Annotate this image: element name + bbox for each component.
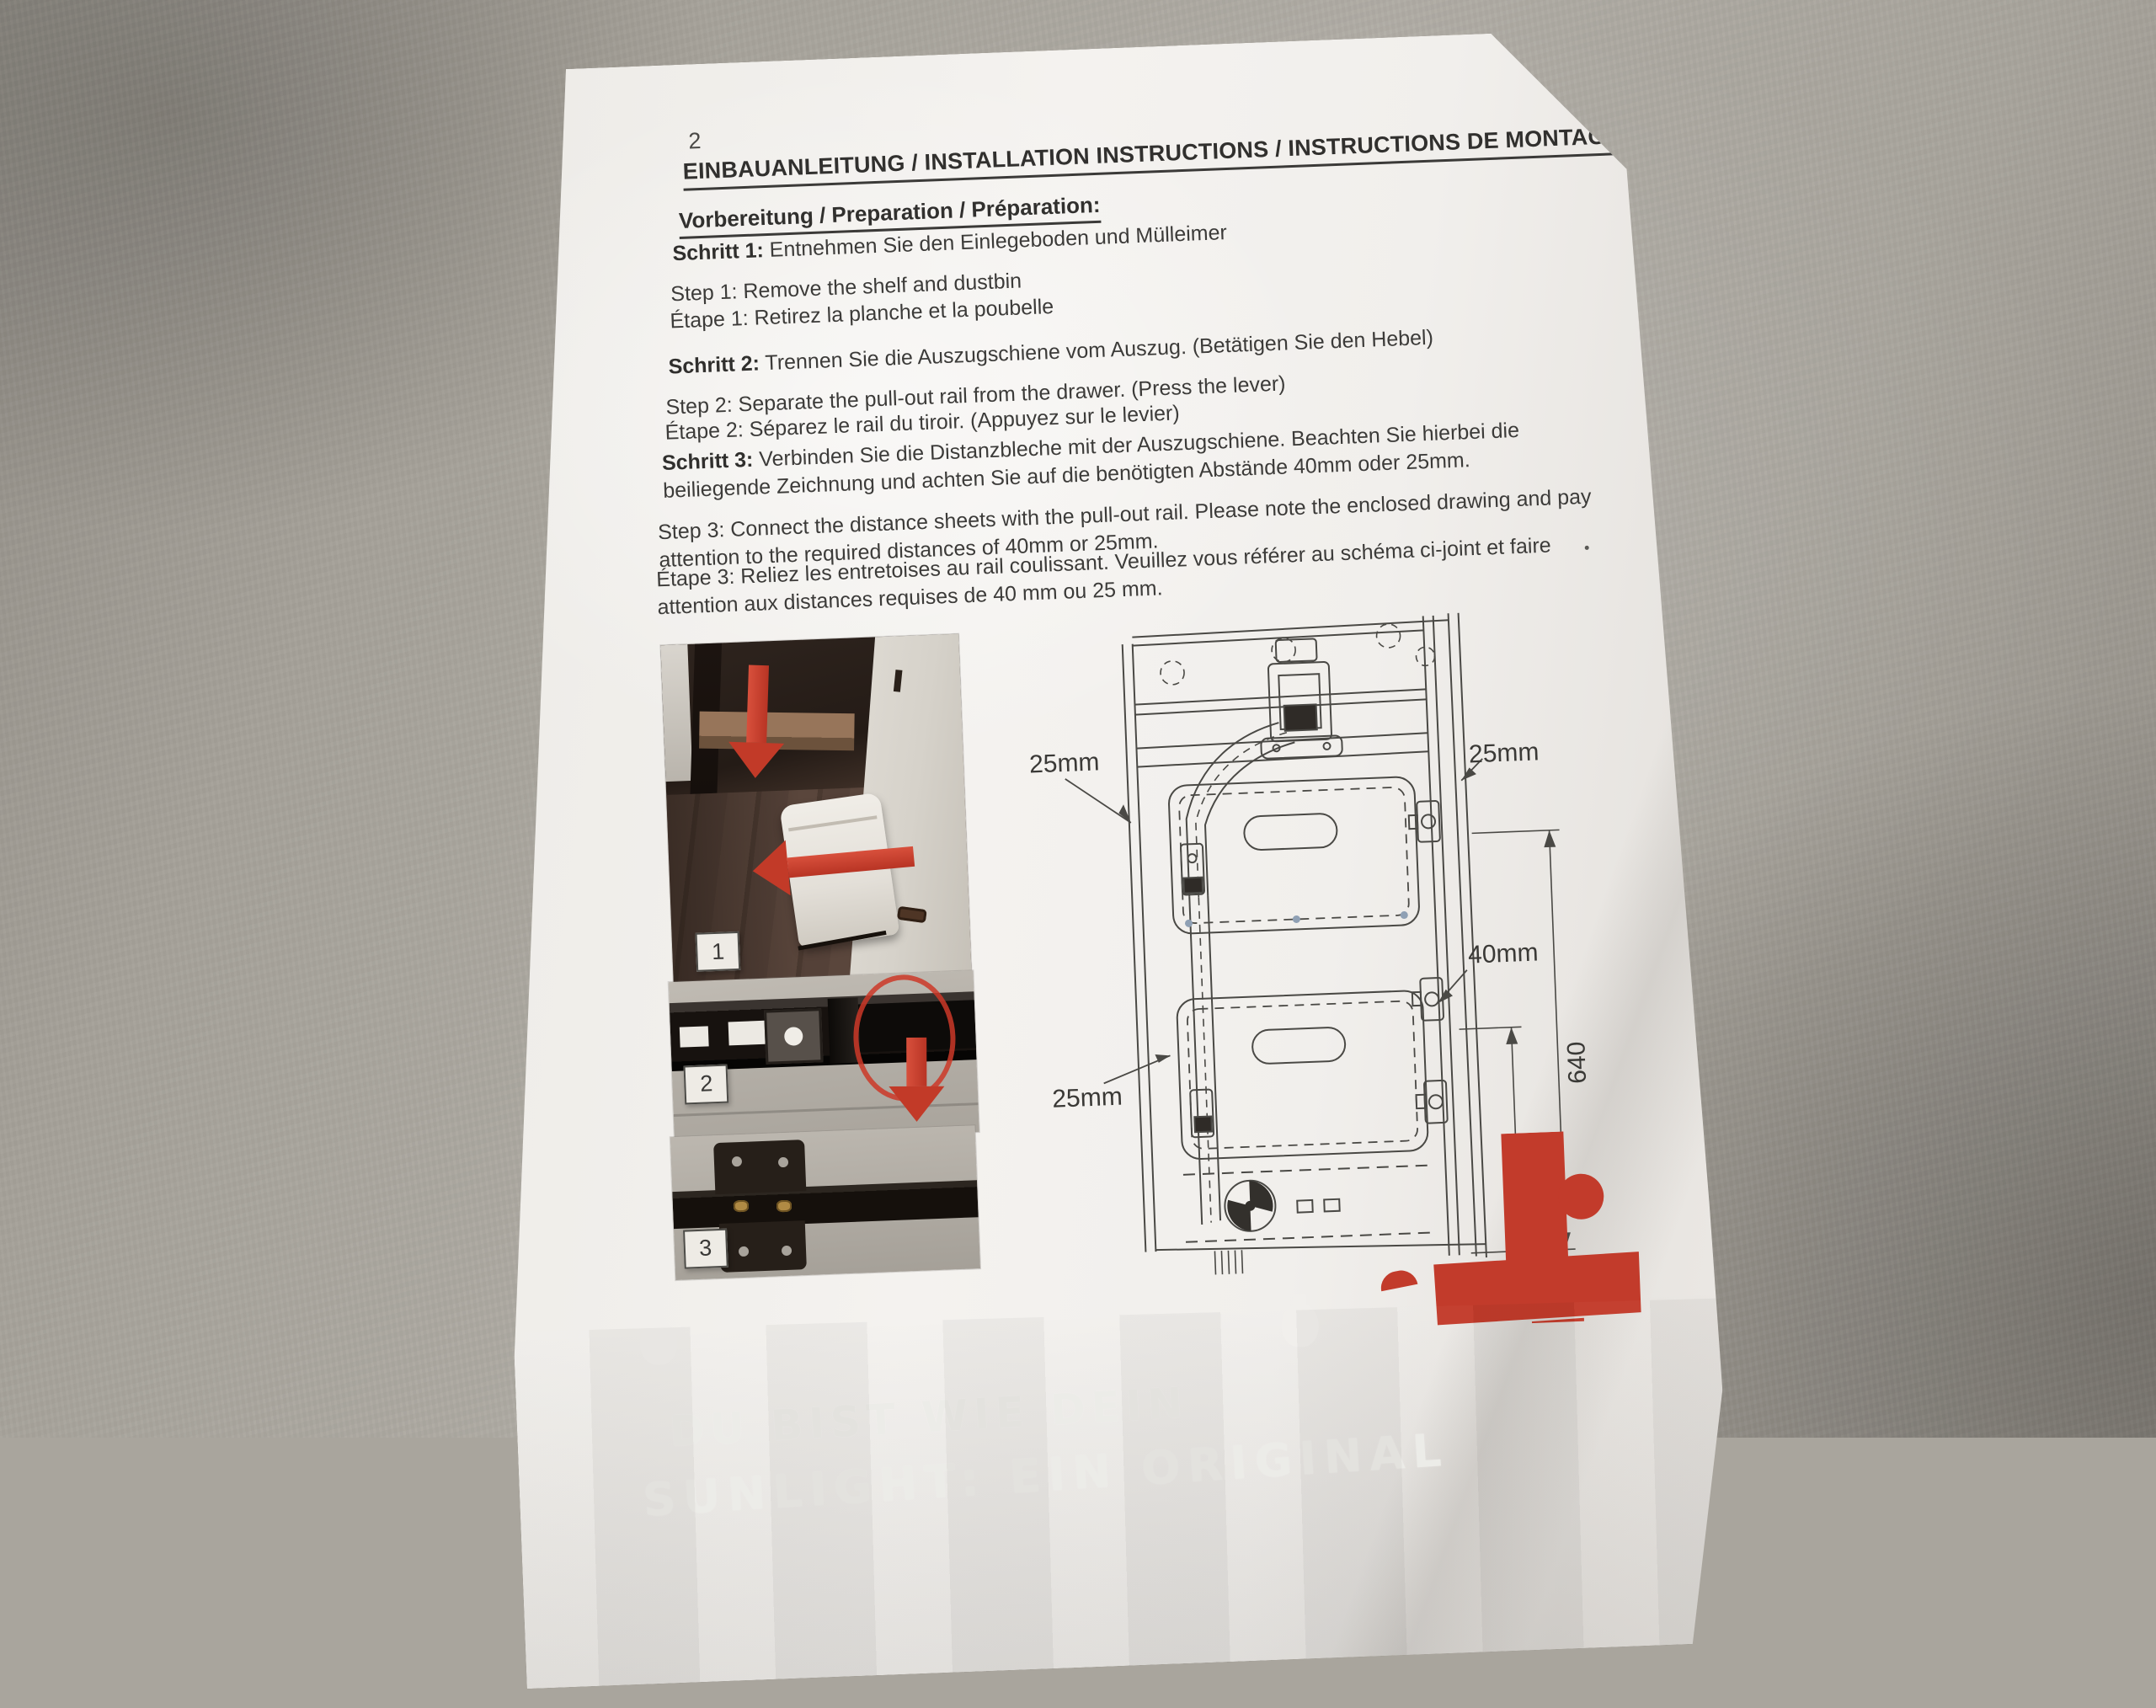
step1-german-label: Schritt 1: <box>672 238 764 265</box>
photo-scene: 2 EINBAUANLEITUNG / INSTALLATION INSTRUC… <box>0 0 2156 1438</box>
red-arrow-down-icon <box>728 665 787 779</box>
dim-label-25mm-top-left: 25mm <box>1028 748 1100 779</box>
dim-label-40mm: 40mm <box>1468 938 1540 969</box>
mounting-hole <box>739 1246 749 1256</box>
mounting-hole <box>777 1157 787 1167</box>
string-light-bulb-icon <box>1281 1303 1319 1348</box>
figure-photo-distance-sheet: 3 <box>670 1125 980 1280</box>
step2-german-label: Schritt 2: <box>668 351 760 378</box>
wall-area <box>660 644 692 782</box>
gold-screw <box>776 1200 792 1213</box>
dim-label-640: 640 <box>1562 1041 1593 1084</box>
figure-photo-remove-dustbin: 1 <box>660 634 971 985</box>
dim-label-25mm-top-right: 25mm <box>1468 738 1540 769</box>
footer-photo-collage: DU BIST WIE DEIN SUNLIGHT: EIN ORIGINAL <box>514 1295 1837 1694</box>
figure-number-badge-1: 1 <box>696 931 741 972</box>
brand-tagline-line1: DU BIST WIE DEIN <box>668 1379 1189 1456</box>
step2-german: Schritt 2: Trennen Sie die Auszugschiene… <box>668 324 1433 381</box>
brand-tagline-line2: SUNLIGHT: EIN ORIGINAL <box>641 1423 1450 1527</box>
puzzle-piece-logo <box>1423 1129 1642 1327</box>
distance-sheet-lower-flange <box>719 1221 807 1273</box>
instruction-sheet: 2 EINBAUANLEITUNG / INSTALLATION INSTRUC… <box>465 23 1840 1689</box>
step3-german-label: Schritt 3: <box>662 448 754 475</box>
document-title: EINBAUANLEITUNG / INSTALLATION INSTRUCTI… <box>682 123 1630 191</box>
page-number: 2 <box>688 128 702 155</box>
string-light-bulb-icon <box>639 1321 677 1365</box>
distance-sheet-upper-flange <box>713 1140 807 1194</box>
figure-number-badge-3: 3 <box>683 1228 728 1268</box>
step2-german-text: Trennen Sie die Auszugschiene vom Auszug… <box>759 326 1433 376</box>
dim-label-25mm-bottom-left: 25mm <box>1052 1083 1123 1114</box>
gold-screw <box>734 1200 750 1213</box>
figure-number-badge-2: 2 <box>684 1064 729 1104</box>
figure-photo-rail-lever: 2 <box>669 970 979 1144</box>
rail-slot <box>680 1026 709 1047</box>
rail-lever-plate <box>764 1009 823 1065</box>
red-arrow-down-icon <box>889 1038 944 1122</box>
